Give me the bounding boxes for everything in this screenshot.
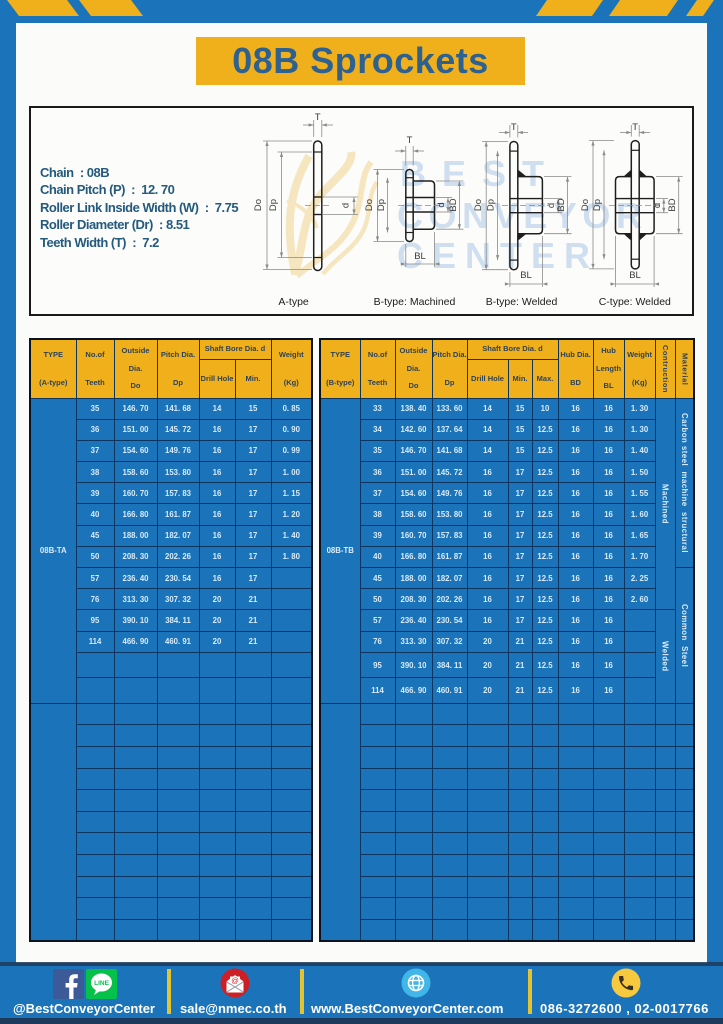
svg-text:T: T: [632, 122, 638, 133]
svg-text:Do: Do: [473, 199, 484, 211]
svg-text:BD: BD: [556, 198, 567, 211]
svg-text:LINE: LINE: [94, 980, 109, 987]
svg-text:A-type: A-type: [278, 296, 309, 308]
svg-text:B-type: Welded: B-type: Welded: [486, 296, 558, 308]
svg-text:BD: BD: [448, 198, 459, 211]
svg-text:Dp: Dp: [376, 199, 387, 211]
svg-text:Dp: Dp: [592, 199, 603, 211]
svg-text:Dp: Dp: [486, 199, 497, 211]
svg-text:BD: BD: [667, 198, 678, 211]
svg-text:B-type: Machined: B-type: Machined: [374, 296, 456, 308]
svg-text:C-type: Welded: C-type: Welded: [599, 296, 671, 308]
svg-text:BL: BL: [520, 270, 532, 281]
svg-text:d: d: [652, 203, 663, 208]
svg-text:BL: BL: [629, 270, 641, 281]
svg-text:Do: Do: [580, 199, 591, 211]
svg-text:d: d: [341, 203, 352, 208]
svg-text:T: T: [315, 112, 321, 123]
svg-text:Dp: Dp: [268, 199, 279, 211]
svg-text:d: d: [436, 202, 447, 207]
svg-text:BL: BL: [414, 251, 426, 262]
svg-text:T: T: [407, 135, 413, 146]
svg-text:Do: Do: [364, 199, 375, 211]
svg-text:Do: Do: [253, 199, 264, 211]
svg-text:T: T: [511, 122, 517, 133]
svg-text:@: @: [231, 976, 239, 985]
